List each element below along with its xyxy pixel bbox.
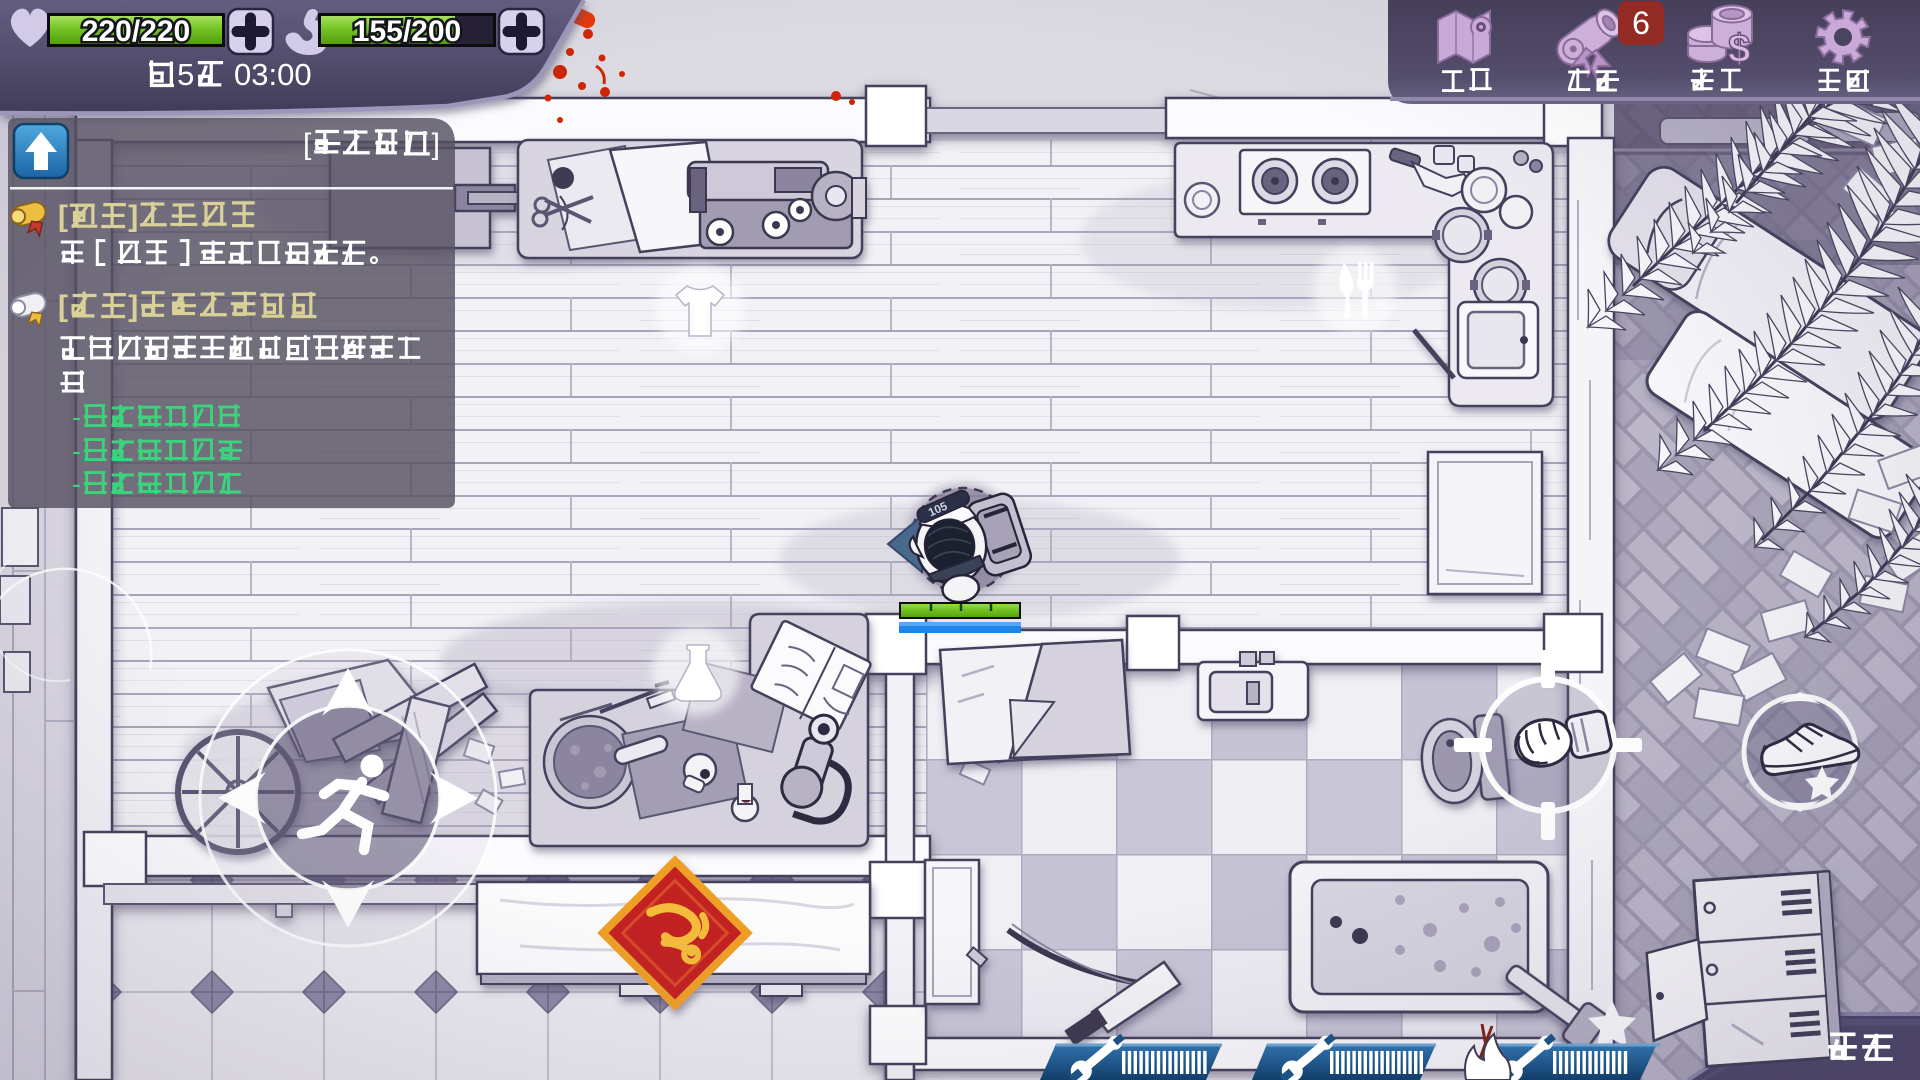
svg-text:220/220: 220/220 [82,15,190,48]
svg-text:6: 6 [1632,5,1650,41]
svg-text:$: $ [1728,27,1750,71]
svg-text:155/200: 155/200 [353,15,461,48]
